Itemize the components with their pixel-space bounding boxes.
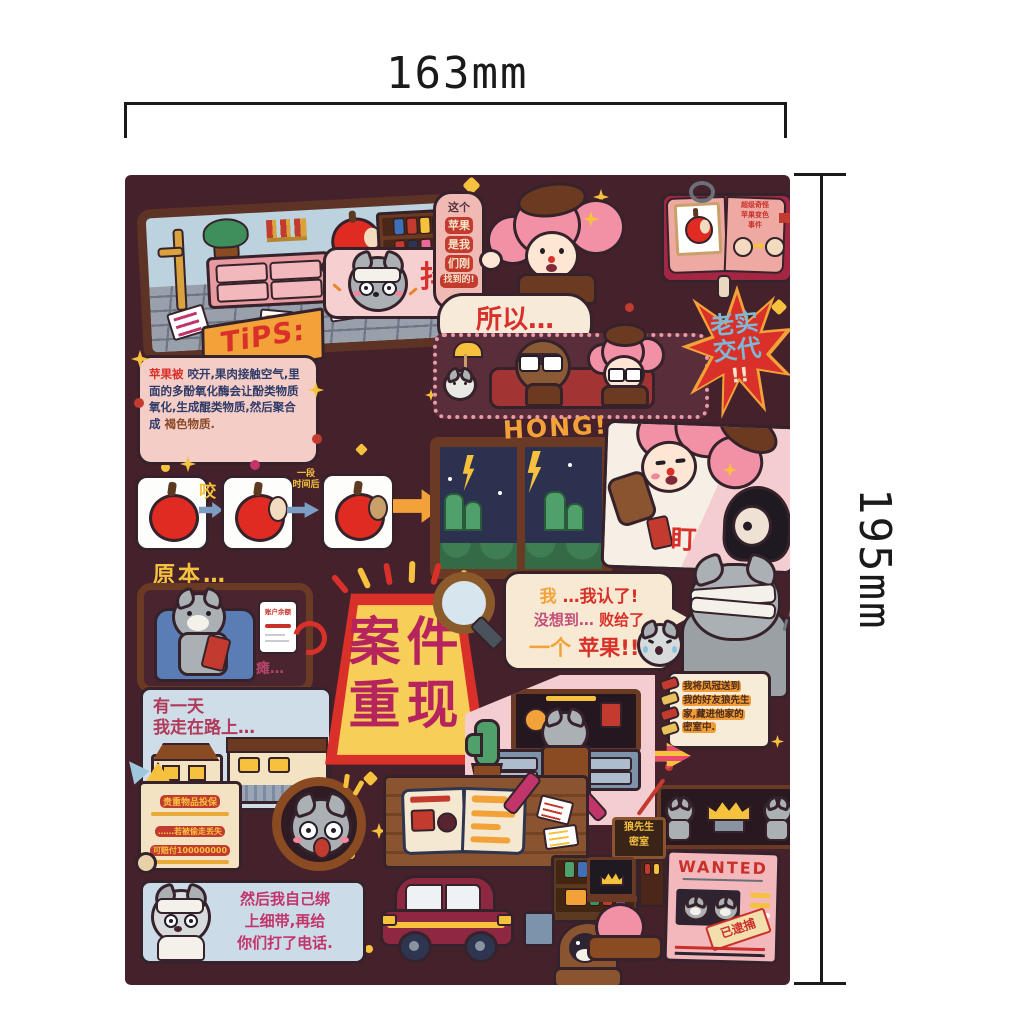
scroll-line <box>151 860 229 864</box>
wolf-room-sign-l1: 狼先生 <box>615 820 663 835</box>
girl-coat <box>601 385 649 407</box>
sign-char: 案 <box>348 613 406 673</box>
glasses-icon <box>608 368 625 382</box>
tear-icon <box>643 646 648 653</box>
width-bracket-tick-left <box>124 102 127 138</box>
then-l1: 然后我自己绑 <box>213 889 357 911</box>
crown-display-case <box>657 785 790 849</box>
dot-icon <box>250 460 260 470</box>
wolf-face <box>290 798 352 856</box>
sweat-line <box>788 603 790 617</box>
bookmark-flag-icon <box>779 213 790 223</box>
case-sign: 案件 重现 <box>325 590 488 770</box>
found-l3: 是我 <box>445 236 473 253</box>
girl-mouth <box>665 475 678 485</box>
wolf-eye <box>187 611 192 616</box>
apple-photo <box>674 202 723 256</box>
glasses-icon <box>542 355 563 372</box>
poster-line <box>683 878 763 882</box>
deerstalker-hat <box>603 323 647 347</box>
tree <box>544 491 566 531</box>
shake-line-icon <box>408 287 418 296</box>
pup-face <box>637 623 683 667</box>
tips-block: 苹果被 咬开,果肉接触空气,里面的多酚氧化酶会让酚类物质氧化,生成醌类物质,然后… <box>137 355 319 465</box>
wolf-chest <box>157 935 205 961</box>
robot-toy <box>600 702 622 728</box>
paperclip-icon <box>689 181 715 203</box>
wolf-room-sign-l2: 密室 <box>615 835 663 850</box>
glasses-icon <box>519 355 540 372</box>
book-note-l2: 苹果变色 <box>731 211 779 221</box>
raccoon-detective <box>515 339 567 403</box>
ray-icon <box>357 567 372 589</box>
tear-icon <box>672 646 677 653</box>
confess-starburst: 老实 交代 !! <box>681 285 790 419</box>
so-label: 所以… <box>476 305 554 335</box>
sparkle-icon <box>363 771 379 787</box>
tv-shelf <box>587 895 637 902</box>
shake-line-icon <box>332 283 342 292</box>
found-l5: 找到的! <box>440 274 477 288</box>
sparkle-icon <box>355 443 368 456</box>
girl-eye <box>675 458 685 463</box>
insurance-scroll: 贵重物品投保 ……若被偷走丢失 可赔付100000000 <box>138 781 242 871</box>
spiral-ring <box>659 720 681 737</box>
found-l2: 苹果 <box>445 217 473 234</box>
confession-p3a: 一个 <box>529 636 571 660</box>
eye-dot <box>576 941 580 945</box>
clue-coin <box>765 237 785 257</box>
then-l3: 你们打了电话. <box>213 933 357 955</box>
width-bracket-tick-right <box>784 102 787 138</box>
notebook-page-left <box>401 787 467 855</box>
sofa <box>587 935 663 961</box>
car-light <box>497 914 513 926</box>
car-window <box>445 884 481 912</box>
house-window <box>268 757 290 773</box>
photo-apple-stem <box>693 208 698 217</box>
wolf-face <box>348 256 408 312</box>
tv <box>587 857 635 897</box>
drawer <box>270 278 323 300</box>
then-l2: 上细带,再给 <box>213 911 357 933</box>
bite-mark-brown <box>368 495 388 521</box>
bandage <box>353 267 401 283</box>
dot-icon <box>365 945 373 953</box>
height-bracket-tick-top <box>794 173 846 176</box>
house-roof <box>148 743 224 761</box>
wolf-ear-icon <box>290 791 318 819</box>
girl-eye <box>559 248 564 254</box>
product-image: 163mm 195mm <box>0 0 1024 1024</box>
house-window <box>238 757 260 773</box>
wolf-ear-icon <box>173 586 198 611</box>
confess-text: 老实 交代 !! <box>677 305 790 391</box>
one-day-l1: 有一天 <box>153 697 329 718</box>
raccoon-body <box>525 383 563 407</box>
sign-char: 现 <box>407 676 465 736</box>
wolf-guard-body <box>765 819 789 841</box>
shock-line-icon <box>352 780 364 796</box>
sparkle-icon <box>180 456 196 472</box>
wanted-poster: WANTED 已逮捕 <box>664 850 781 965</box>
pup-eye <box>648 639 655 644</box>
wolf-phone-panel: 账户余额 瘫… <box>137 583 313 693</box>
highlight-bar <box>472 795 508 803</box>
wolf-muzzle <box>187 615 209 631</box>
car-trim <box>387 922 505 928</box>
tips-tail: 褐色物质. <box>165 417 215 431</box>
car-wheel <box>398 931 432 963</box>
found-l4: 们刚 <box>445 255 473 272</box>
tips-lead: 苹果被 <box>149 367 184 381</box>
blush <box>651 473 661 480</box>
insurance-l3: 可赔付100000000 <box>150 845 230 856</box>
tree <box>464 501 482 531</box>
sparkle-icon <box>771 735 784 748</box>
coat-rack-peg <box>157 247 183 258</box>
tv-room <box>587 853 665 955</box>
girl-mouth <box>546 264 557 272</box>
hong-label: HONG! <box>502 410 608 444</box>
pup-eye <box>666 639 673 644</box>
height-label: 195mm <box>849 488 900 638</box>
pup-mouth <box>655 646 663 655</box>
house-roof <box>226 737 328 753</box>
sticker-dark-blob <box>437 812 458 833</box>
bandage <box>156 898 204 914</box>
mini-bookshelf <box>639 859 665 907</box>
car-window <box>405 884 443 912</box>
wolf-eye <box>299 821 318 840</box>
candles <box>266 218 307 242</box>
dark-haired-figure <box>722 485 790 563</box>
wolf-mouth-open <box>313 837 331 859</box>
diary-l1: 我将凤冠送到 <box>682 681 741 692</box>
wolf-ear-icon <box>323 791 351 819</box>
star-dot <box>498 491 502 495</box>
wolf-nose <box>373 292 379 297</box>
apple-stem <box>349 211 357 223</box>
highlight-bar <box>471 823 501 830</box>
husky-pup <box>443 369 477 401</box>
scroll-line <box>151 812 229 816</box>
dot-icon <box>312 434 322 444</box>
spiral-ring <box>659 690 681 707</box>
wolf-ear-icon <box>200 586 225 611</box>
star-dot <box>448 477 452 481</box>
blush <box>340 837 349 843</box>
plant-leaves <box>202 217 250 249</box>
stare-panel: 盯 <box>600 420 790 575</box>
wanted-title: WANTED <box>669 857 777 879</box>
girl-with-glasses <box>587 333 657 403</box>
evidence-book: 超级奇怪 苹果变色 事件 <box>661 185 789 293</box>
phoenix-crown-icon <box>707 797 751 821</box>
apple-step-1 <box>135 475 209 551</box>
figure-face <box>731 504 772 547</box>
star-dot <box>568 463 572 467</box>
balance-popup: 账户余额 <box>258 600 298 654</box>
sticker-sheet: 抖 这个 苹果 是我 们刚 找到的! <box>125 175 790 985</box>
highlight-bar <box>470 836 510 843</box>
stare-label: 盯 <box>670 519 697 557</box>
cactus-arm <box>465 733 483 757</box>
ui-line <box>265 640 289 642</box>
storage-bin <box>523 911 555 947</box>
confession-p2a: 没想到… <box>534 611 594 629</box>
lamp-icon <box>453 341 483 358</box>
drawer <box>588 771 632 785</box>
crown-stand <box>713 819 745 833</box>
width-bracket-line <box>124 102 787 105</box>
sparkle-icon <box>308 382 324 398</box>
detective-girl <box>487 191 619 299</box>
blush <box>293 837 302 843</box>
spiral-ring <box>659 705 681 722</box>
tree <box>566 503 584 531</box>
glasses-icon <box>625 368 642 382</box>
poster-bar <box>750 893 770 899</box>
balance-arrow <box>265 624 291 628</box>
apple-whole <box>149 494 199 542</box>
girl-nose <box>548 256 555 263</box>
wolf-eye <box>184 914 198 928</box>
then-text: 然后我自己绑 上细带,再给 你们打了电话. <box>213 889 357 954</box>
wolf-head-back <box>689 563 781 641</box>
slump-label: 瘫… <box>256 658 284 678</box>
poster-line <box>675 952 765 957</box>
sticker-red-face <box>411 809 436 832</box>
dot-icon <box>625 303 634 312</box>
book-note: 超级奇怪 苹果变色 事件 <box>731 201 779 230</box>
balance-label: 账户余额 <box>260 606 296 616</box>
apple-step-3 <box>321 473 395 551</box>
bite-mark-fresh <box>268 496 288 522</box>
house-window <box>188 765 206 781</box>
height-bracket-tick-bottom <box>794 982 846 985</box>
dot-icon <box>134 398 144 408</box>
diary-l2: 我的好友狼先生 <box>682 695 751 706</box>
scribble-title <box>410 795 450 802</box>
crying-pup <box>637 623 681 667</box>
wolf-eye <box>359 281 374 296</box>
book-note-l3: 事件 <box>731 221 779 231</box>
diary-note: 我将凤冠送到 我的好友狼先生 家,藏进他家的 密室中. <box>667 671 771 749</box>
confession-p1b: …我认了! <box>563 587 639 607</box>
found-l1: 这个 <box>436 199 482 216</box>
ray-icon <box>409 561 416 583</box>
interrogation-room <box>433 333 709 419</box>
girl-eye <box>540 248 545 254</box>
shelf-bar <box>546 696 596 701</box>
wolf-eye <box>206 611 211 616</box>
wolf-mouth <box>174 926 182 932</box>
bite-label: 咬 <box>199 477 216 502</box>
insurance-l2: ……若被偷走丢失 <box>155 826 225 837</box>
blush <box>395 291 403 296</box>
lightning-icon <box>522 451 548 493</box>
crown-on-tv-icon <box>600 870 624 886</box>
drawer <box>216 281 269 303</box>
storm-window <box>430 437 612 579</box>
sticky-note <box>536 794 575 826</box>
book-note-l1: 超级奇怪 <box>731 201 779 211</box>
lightning-icon <box>458 455 480 491</box>
pup-ear-icon <box>458 366 476 384</box>
sticky-note <box>543 824 580 851</box>
height-bracket-line <box>820 173 823 985</box>
scroll-curl <box>135 852 157 874</box>
insurance-title: 贵重物品投保 <box>160 795 220 808</box>
ray-icon <box>383 563 393 586</box>
diary-l4: 密室中. <box>682 722 716 733</box>
magnifier-icon <box>433 572 503 642</box>
then-panel: 然后我自己绑 上细带,再给 你们打了电话. <box>140 880 366 964</box>
girl-eye <box>655 460 665 465</box>
clue-coin <box>733 237 753 257</box>
width-label: 163mm <box>386 48 528 99</box>
girl-hand <box>479 249 503 271</box>
car-light <box>381 914 397 926</box>
car-wheel <box>464 931 498 963</box>
poster-line <box>675 946 765 951</box>
dresser <box>206 251 333 309</box>
wolf-mugshot <box>682 895 711 922</box>
tree <box>444 493 464 531</box>
window-divider <box>517 447 525 569</box>
shocked-wolf-medallion <box>272 777 366 871</box>
shock-line-icon <box>343 774 350 789</box>
sign-char: 重 <box>348 676 406 736</box>
red-car <box>380 875 514 957</box>
wolf-guard-body <box>667 819 691 841</box>
coat <box>553 967 623 985</box>
drawer <box>588 757 632 771</box>
diary-l3: 家,藏进他家的 <box>682 709 745 720</box>
confession-p1a: 我 <box>540 587 557 607</box>
ui-line <box>265 634 285 636</box>
spiral-ring <box>659 675 681 692</box>
blush <box>353 291 361 296</box>
